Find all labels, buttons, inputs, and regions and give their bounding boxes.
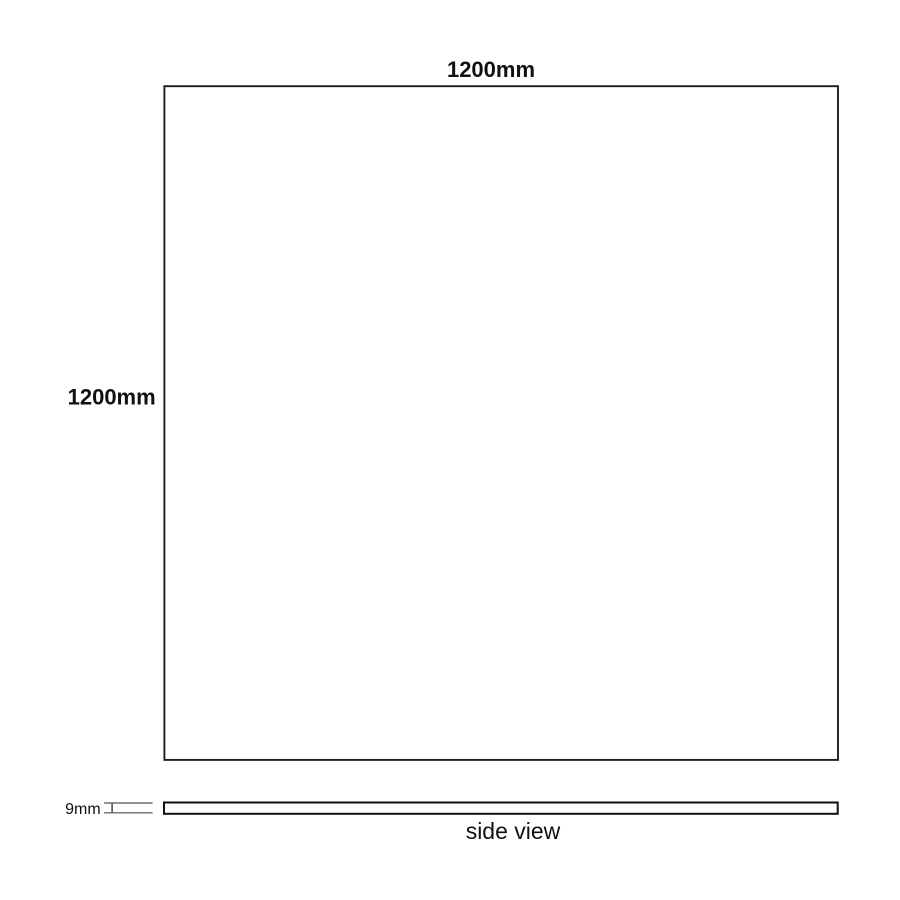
svg-text:1200mm: 1200mm (447, 57, 535, 82)
svg-text:9mm: 9mm (65, 801, 101, 818)
svg-text:side view: side view (466, 818, 561, 844)
svg-text:1200mm: 1200mm (68, 385, 156, 410)
